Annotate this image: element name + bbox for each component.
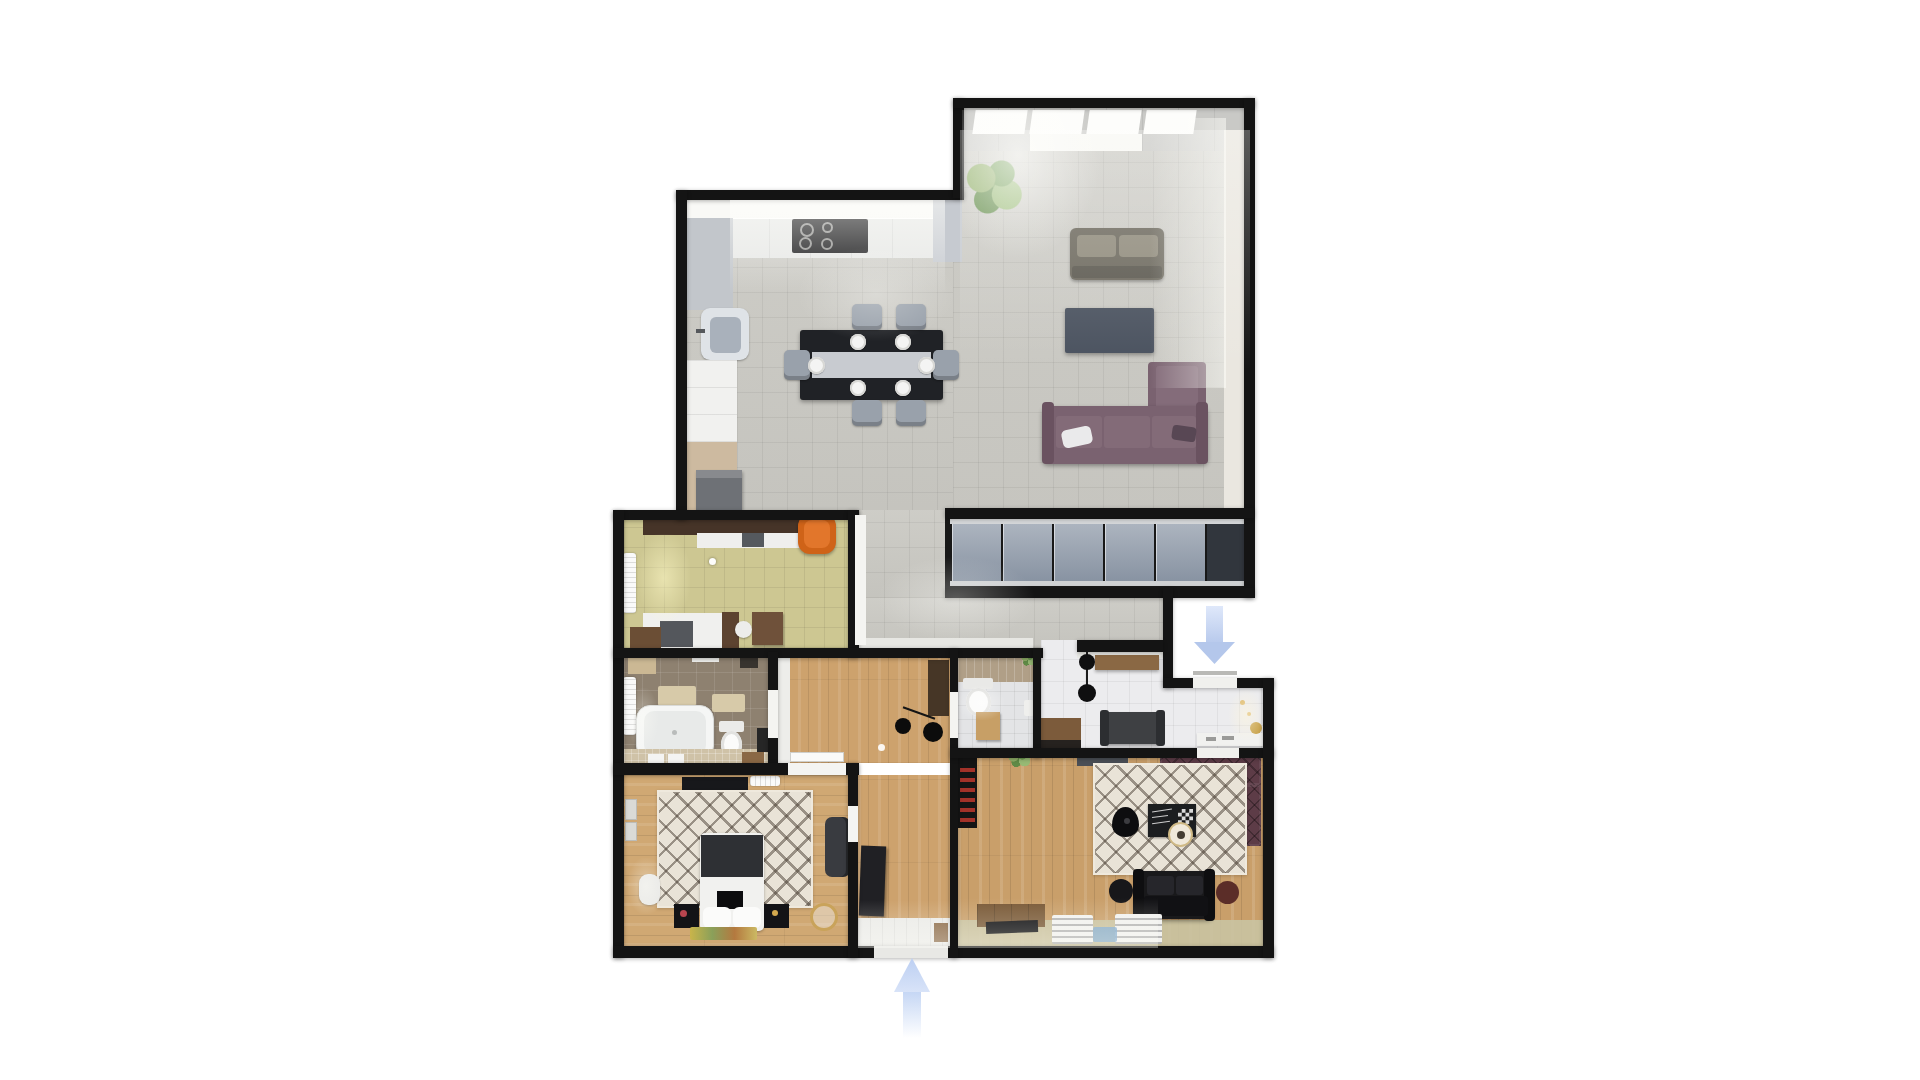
table-runner <box>812 352 931 378</box>
bed-pillow-1 <box>703 907 731 928</box>
side-table-red <box>1216 881 1239 904</box>
entrance-door-gap <box>874 946 948 958</box>
wardrobe-panel-2 <box>1003 524 1052 581</box>
ledge-item-2 <box>1222 736 1234 740</box>
sofa-chaise-cushion <box>1156 366 1198 410</box>
sofa-pillow-dark <box>1171 424 1197 442</box>
entrance-arrow-up-head <box>894 958 930 992</box>
office-laptop <box>742 533 764 547</box>
office-sphere-vase <box>735 621 752 638</box>
loveseat-cushion-1 <box>1077 235 1116 257</box>
wall-smallbath-right <box>1033 648 1041 758</box>
entrance-arrow-down-shaft <box>1206 606 1223 644</box>
burner-1 <box>800 223 814 237</box>
kitchen-faucet <box>696 329 705 333</box>
burner-3 <box>799 237 812 250</box>
wall-wardrobe-bottom <box>945 588 1254 598</box>
hallway-cabinet <box>928 660 949 716</box>
bedroom2-door-gap <box>1197 748 1239 758</box>
office-stool <box>752 612 783 645</box>
skylight-window-4 <box>1143 110 1196 134</box>
loveseat-cushion-2 <box>1119 235 1158 257</box>
entry-wall-shelf <box>1095 655 1159 670</box>
bedroom-side-door-gap <box>848 806 858 842</box>
corridor-baseboard <box>859 638 1033 648</box>
nightstand-decor-red <box>680 910 687 917</box>
skylight-window-2 <box>1029 110 1084 134</box>
blue-glass-tray <box>1093 927 1117 942</box>
bathroom-door <box>768 690 778 738</box>
entrance-arrow-up-shaft <box>903 990 921 1038</box>
corridor-floor-upper <box>859 510 945 598</box>
kitchen-sink-basin <box>710 317 741 353</box>
bath-mat-1 <box>658 686 696 706</box>
bedroom-door-leaf <box>790 752 844 762</box>
plate-4 <box>895 380 911 396</box>
sofa-cushion-2 <box>1104 416 1150 448</box>
black-sofa-seat <box>1144 896 1208 916</box>
sofa-arm-right <box>1196 402 1208 464</box>
hallway-left-door-strip <box>778 658 790 763</box>
porch-threshold <box>1193 671 1237 675</box>
bathroom-cabinet <box>628 656 656 674</box>
porch-door-gap <box>1193 678 1237 688</box>
plate-6 <box>918 357 935 374</box>
wall-wardrobe-top <box>945 508 1254 518</box>
bedroom-radiator <box>750 776 780 786</box>
loveseat-front <box>1072 266 1162 278</box>
wall-entry-top <box>1077 640 1163 652</box>
kitchen-left-counter <box>687 218 733 310</box>
bedroom-gold-mirror <box>810 903 838 931</box>
leaning-panel <box>859 846 886 917</box>
bathroom-radiator <box>623 677 636 735</box>
wall-frame-2 <box>625 822 637 841</box>
wall-kitchen-top <box>676 190 964 200</box>
striped-mat-2 <box>1115 914 1162 944</box>
sofa-arm-left <box>1042 402 1054 464</box>
dining-chair-4 <box>896 400 926 426</box>
potted-palm-plant <box>962 155 1026 221</box>
burner-2 <box>822 222 833 233</box>
side-table-black <box>1109 879 1133 903</box>
black-sofa-cushion-2 <box>1176 876 1203 895</box>
wall-porch-left <box>1163 588 1173 688</box>
fridge <box>687 360 737 442</box>
wood-stub <box>934 923 948 942</box>
soundbar <box>986 920 1038 934</box>
entry-bench-arm-right <box>1156 710 1165 746</box>
dining-chair-5 <box>784 350 810 380</box>
office-orange-chair-seat <box>804 520 830 548</box>
wall-bedroom-right <box>848 763 858 958</box>
small-bathroom-door <box>950 692 958 738</box>
entry-pendant-lamp-1 <box>1079 654 1095 670</box>
bedroom-colorful-mat <box>690 927 757 940</box>
bedroom-door-gap <box>788 763 846 775</box>
dining-chair-6 <box>933 350 959 380</box>
black-sofa-cushion-1 <box>1147 876 1174 895</box>
plate-5 <box>808 357 825 374</box>
nightstand-right <box>764 904 789 928</box>
office-radiator <box>623 553 636 613</box>
wall-hall-top <box>613 648 1043 658</box>
bathtub-drain <box>672 730 677 735</box>
hallway-pendant-lamp-2 <box>923 722 943 742</box>
counter-end-cabinet <box>933 198 962 262</box>
smallbath-box <box>976 712 1000 740</box>
speaker-cube <box>696 470 742 510</box>
wall-right-upper <box>1244 98 1255 598</box>
wall-frame-1 <box>625 799 637 820</box>
wardrobe-rail-bottom <box>950 581 1249 586</box>
plate-2 <box>895 334 911 350</box>
nightstand-decor-gold <box>772 910 778 916</box>
wardrobe-panel-dark <box>1207 524 1248 581</box>
wall-right-lower <box>1263 678 1274 958</box>
entry-bench <box>1102 712 1163 744</box>
bedroom-pouf <box>639 874 660 905</box>
office-door <box>855 515 866 645</box>
nightstand-left <box>674 904 699 928</box>
plate-1 <box>850 334 866 350</box>
gold-vase <box>1250 722 1262 734</box>
wardrobe-panel-1 <box>952 524 1001 581</box>
entry-pendant-lamp-2 <box>1078 684 1096 702</box>
wall-living-top <box>953 98 1255 108</box>
dining-chair-1 <box>852 304 882 330</box>
wall-left-lower <box>613 510 624 958</box>
bookshelf-books <box>960 764 975 822</box>
bath-mat-2 <box>712 694 745 712</box>
bathroom-black-item <box>757 728 768 752</box>
floor-plan-image <box>0 0 1920 1080</box>
striped-mat-1 <box>1052 915 1093 944</box>
gold-dot-1 <box>1240 700 1245 705</box>
office-printer <box>660 621 693 647</box>
skylight-window-1 <box>972 110 1027 134</box>
tray-cup <box>1177 831 1185 839</box>
bedroom-armchair <box>825 817 850 877</box>
wardrobe-panel-3 <box>1054 524 1103 581</box>
guitar-highlight <box>1124 818 1130 824</box>
wardrobe-panel-4 <box>1105 524 1154 581</box>
wall-kitchen-left <box>676 190 687 520</box>
office-drawers <box>630 627 661 648</box>
dining-chair-2 <box>896 304 926 330</box>
hallway-spot-light <box>878 744 885 751</box>
plate-3 <box>850 380 866 396</box>
skylight-window-3 <box>1086 110 1141 134</box>
gold-dot-2 <box>1247 712 1251 716</box>
entry-bench-arm-left <box>1100 710 1109 746</box>
living-window-lower <box>1030 134 1142 151</box>
bed-pillow-2 <box>733 907 761 928</box>
wardrobe-panel-5 <box>1156 524 1205 581</box>
bed-throw <box>701 835 763 877</box>
ledge-item-1 <box>1206 737 1216 741</box>
dining-chair-3 <box>852 400 882 426</box>
hallway-floor-upper <box>778 658 950 763</box>
kitchen-window-sill-band <box>687 200 940 218</box>
coffee-table <box>1065 308 1154 353</box>
hallway-pendant-lamp-1 <box>895 718 911 734</box>
burner-4 <box>821 238 833 250</box>
office-pendant-dot <box>709 558 716 565</box>
wall-office-top <box>613 510 859 520</box>
wall-living-step-left <box>953 98 964 198</box>
